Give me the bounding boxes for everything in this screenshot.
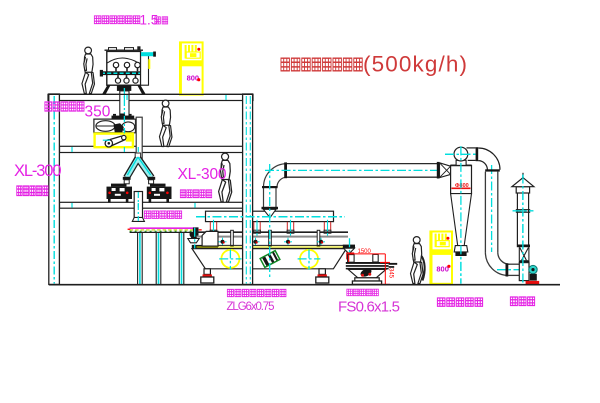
- svg-text:(500kg/h): (500kg/h): [363, 52, 467, 77]
- svg-text:ZLG6x0.75: ZLG6x0.75: [227, 301, 275, 313]
- svg-text:800: 800: [436, 265, 449, 274]
- svg-text:1500: 1500: [358, 249, 372, 255]
- svg-text:345: 345: [387, 268, 393, 279]
- svg-text:XL-300: XL-300: [14, 162, 62, 180]
- svg-text:XL-300: XL-300: [178, 166, 227, 183]
- svg-text:FS0.6x1.5: FS0.6x1.5: [338, 299, 400, 316]
- svg-text:350: 350: [85, 104, 111, 121]
- svg-text:1.5: 1.5: [140, 13, 159, 28]
- svg-text:800: 800: [187, 74, 200, 83]
